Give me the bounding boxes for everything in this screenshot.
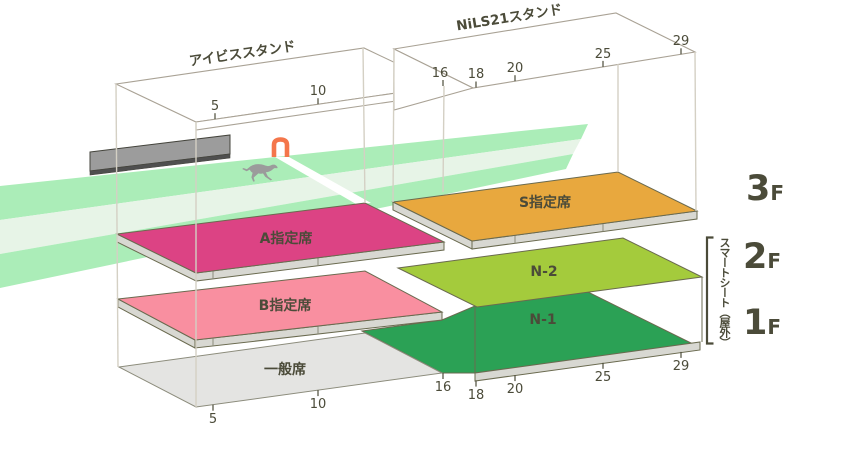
- support-column: [116, 84, 118, 367]
- smart-seat-bracket: [707, 238, 714, 344]
- seat-b-label: B指定席: [259, 297, 312, 314]
- seat-general-label: 一般席: [264, 361, 306, 378]
- grandstand-seating-diagram: 5 10 16 18 20 25 29 5 10 16 18 20 25 29 …: [0, 0, 842, 455]
- gate-number: 16: [432, 66, 449, 81]
- gate-number: 25: [595, 370, 612, 385]
- nils21-stand-roof: [394, 13, 695, 110]
- gate-number: 29: [673, 34, 690, 49]
- support-column: [443, 86, 444, 192]
- seat-a-label: A指定席: [260, 230, 313, 247]
- winning-post-icon: [274, 140, 287, 158]
- gate-number: 20: [507, 61, 524, 76]
- gate-number: 29: [673, 359, 690, 374]
- gate-number: 18: [468, 67, 485, 82]
- smart-seat-vertical-label: スマートシート（屋外）: [717, 237, 732, 349]
- gate-number: 5: [209, 412, 217, 427]
- floor-label-3f: 3F: [746, 169, 784, 209]
- gate-number: 10: [310, 397, 327, 412]
- gate-number: 10: [310, 84, 327, 99]
- seat-n2-label: N-2: [530, 264, 557, 280]
- gate-number: 20: [507, 382, 524, 397]
- floor-label-2f: 2F: [743, 237, 781, 277]
- gate-number: 5: [211, 99, 219, 114]
- support-column: [695, 52, 696, 211]
- support-column: [393, 49, 394, 202]
- gate-number: 16: [435, 380, 452, 395]
- gate-number: 25: [595, 47, 612, 62]
- diagram-canvas: 5 10 16 18 20 25 29 5 10 16 18 20 25 29 …: [0, 0, 842, 455]
- seat-n1-label: N-1: [529, 312, 556, 328]
- seat-s-label: S指定席: [519, 194, 571, 211]
- gate-number: 18: [468, 388, 485, 403]
- floor-label-1f: 1F: [743, 303, 781, 343]
